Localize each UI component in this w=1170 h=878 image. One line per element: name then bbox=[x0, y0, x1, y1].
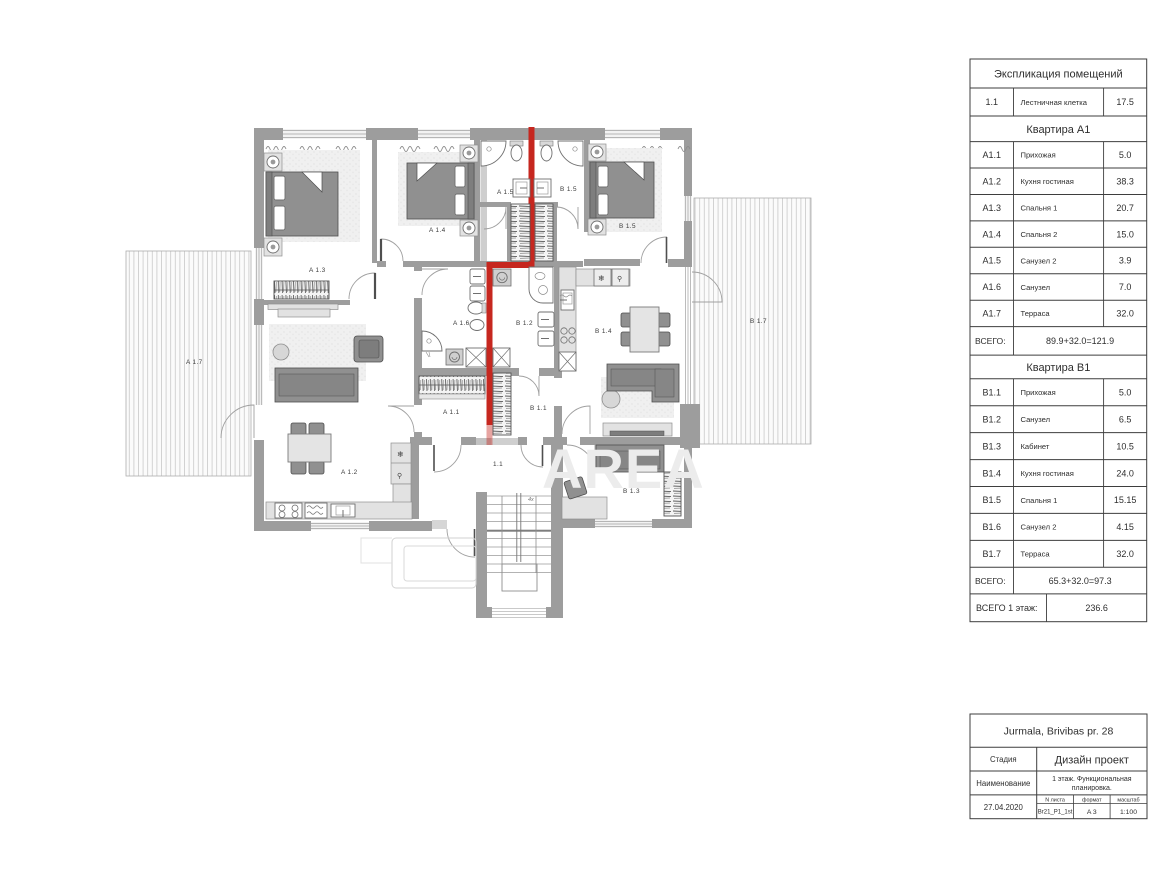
svg-text:Дизайн проект: Дизайн проект bbox=[1055, 755, 1129, 767]
svg-text:Прихожая: Прихожая bbox=[1021, 151, 1056, 160]
svg-text:Кухня гостиная: Кухня гостиная bbox=[1021, 469, 1074, 478]
svg-text:Квартира В1: Квартира В1 bbox=[1026, 362, 1090, 374]
svg-text:A1.2: A1.2 bbox=[982, 176, 1001, 186]
svg-text:Спальня 2: Спальня 2 bbox=[1021, 230, 1058, 239]
svg-text:Спальня 1: Спальня 1 bbox=[1021, 496, 1058, 505]
svg-text:5.0: 5.0 bbox=[1119, 150, 1132, 160]
svg-text:A 1.5: A 1.5 bbox=[497, 189, 514, 196]
svg-text:Терраса: Терраса bbox=[1021, 309, 1051, 318]
svg-text:ВСЕГО:: ВСЕГО: bbox=[975, 336, 1006, 346]
svg-text:A1.4: A1.4 bbox=[982, 229, 1001, 239]
svg-text:N листа: N листа bbox=[1045, 798, 1065, 804]
svg-text:A 1.6: A 1.6 bbox=[453, 320, 470, 327]
svg-text:B 1.4: B 1.4 bbox=[595, 328, 612, 335]
svg-text:1 этаж. Функциональная: 1 этаж. Функциональная bbox=[1052, 776, 1132, 783]
svg-text:Санузел 2: Санузел 2 bbox=[1021, 256, 1057, 265]
svg-text:B 1.5: B 1.5 bbox=[619, 223, 636, 230]
svg-text:Jurmala, Brivibas pr. 28: Jurmala, Brivibas pr. 28 bbox=[1004, 726, 1114, 738]
svg-text:38.3: 38.3 bbox=[1116, 176, 1134, 186]
svg-text:1.1: 1.1 bbox=[985, 97, 998, 107]
svg-text:Стадия: Стадия bbox=[990, 755, 1017, 764]
svg-text:7.0: 7.0 bbox=[1119, 282, 1132, 292]
svg-text:15.0: 15.0 bbox=[1116, 229, 1134, 239]
svg-text:Санузел: Санузел bbox=[1021, 415, 1051, 424]
svg-text:20.7: 20.7 bbox=[1116, 203, 1134, 213]
svg-text:A1.6: A1.6 bbox=[982, 282, 1001, 292]
svg-text:65.3+32.0=97.3: 65.3+32.0=97.3 bbox=[1049, 576, 1112, 586]
svg-text:Квартира А1: Квартира А1 bbox=[1026, 124, 1090, 136]
svg-text:B1.6: B1.6 bbox=[982, 522, 1001, 532]
svg-text:Лестничная клетка: Лестничная клетка bbox=[1021, 98, 1088, 107]
svg-text:32.0: 32.0 bbox=[1116, 309, 1134, 319]
svg-text:32.0: 32.0 bbox=[1116, 549, 1134, 559]
svg-text:Наименование: Наименование bbox=[976, 779, 1030, 788]
svg-text:3.9: 3.9 bbox=[1119, 256, 1132, 266]
svg-text:❄: ❄ bbox=[598, 274, 605, 283]
svg-text:27.04.2020: 27.04.2020 bbox=[984, 803, 1024, 812]
svg-text:A1.1: A1.1 bbox=[982, 150, 1001, 160]
svg-text:A 1.1: A 1.1 bbox=[443, 409, 460, 416]
svg-text:⚲: ⚲ bbox=[397, 472, 402, 480]
svg-text:❄: ❄ bbox=[397, 450, 404, 459]
svg-text:ВСЕГО:: ВСЕГО: bbox=[975, 576, 1006, 586]
svg-text:A 1.4: A 1.4 bbox=[429, 227, 446, 234]
svg-text:AREA: AREA bbox=[542, 437, 705, 500]
svg-text:A 1.2: A 1.2 bbox=[341, 469, 358, 476]
svg-text:B1.2: B1.2 bbox=[982, 414, 1001, 424]
svg-text:1:100: 1:100 bbox=[1120, 809, 1137, 816]
svg-text:4x: 4x bbox=[528, 497, 534, 503]
svg-text:Кухня гостиная: Кухня гостиная bbox=[1021, 177, 1074, 186]
svg-text:A 1.7: A 1.7 bbox=[186, 359, 203, 366]
svg-text:B1.4: B1.4 bbox=[982, 468, 1001, 478]
svg-text:Прихожая: Прихожая bbox=[1021, 388, 1056, 397]
svg-text:A1.5: A1.5 bbox=[982, 256, 1001, 266]
svg-text:масштаб: масштаб bbox=[1117, 798, 1139, 804]
svg-text:B1.3: B1.3 bbox=[982, 441, 1001, 451]
svg-text:A 1.3: A 1.3 bbox=[309, 267, 326, 274]
svg-text:24.0: 24.0 bbox=[1116, 468, 1134, 478]
svg-text:Терраса: Терраса bbox=[1021, 550, 1051, 559]
svg-text:⚲: ⚲ bbox=[617, 275, 622, 283]
svg-text:Санузел 2: Санузел 2 bbox=[1021, 523, 1057, 532]
svg-text:ВСЕГО 1 этаж:: ВСЕГО 1 этаж: bbox=[976, 603, 1038, 613]
svg-text:236.6: 236.6 bbox=[1085, 603, 1108, 613]
svg-text:B1.7: B1.7 bbox=[982, 549, 1001, 559]
svg-text:Санузел: Санузел bbox=[1021, 283, 1051, 292]
svg-text:89.9+32.0=121.9: 89.9+32.0=121.9 bbox=[1046, 336, 1114, 346]
svg-text:5.0: 5.0 bbox=[1119, 387, 1132, 397]
svg-text:Спальня 1: Спальня 1 bbox=[1021, 204, 1058, 213]
svg-text:Экспликация помещений: Экспликация помещений bbox=[994, 69, 1123, 81]
svg-text:формат: формат bbox=[1082, 798, 1102, 804]
svg-text:4.15: 4.15 bbox=[1116, 522, 1134, 532]
svg-text:15.15: 15.15 bbox=[1114, 495, 1137, 505]
svg-text:A1.7: A1.7 bbox=[982, 309, 1001, 319]
svg-text:1.1: 1.1 bbox=[493, 461, 503, 468]
svg-text:B 1.7: B 1.7 bbox=[750, 318, 767, 325]
svg-text:10.5: 10.5 bbox=[1116, 441, 1134, 451]
svg-text:B 1.2: B 1.2 bbox=[516, 320, 533, 327]
svg-text:планировка.: планировка. bbox=[1072, 785, 1112, 792]
svg-text:A 3: A 3 bbox=[1087, 809, 1097, 816]
svg-text:17.5: 17.5 bbox=[1116, 97, 1134, 107]
svg-text:B 1.5: B 1.5 bbox=[560, 186, 577, 193]
svg-text:B1.5: B1.5 bbox=[982, 495, 1001, 505]
svg-text:A1.3: A1.3 bbox=[982, 203, 1001, 213]
svg-text:6.5: 6.5 bbox=[1119, 414, 1132, 424]
svg-text:B1.1: B1.1 bbox=[982, 387, 1001, 397]
svg-text:B 1.1: B 1.1 bbox=[530, 405, 547, 412]
svg-text:Br21_P1_1st: Br21_P1_1st bbox=[1038, 810, 1073, 816]
svg-text:Кабинет: Кабинет bbox=[1021, 442, 1050, 451]
